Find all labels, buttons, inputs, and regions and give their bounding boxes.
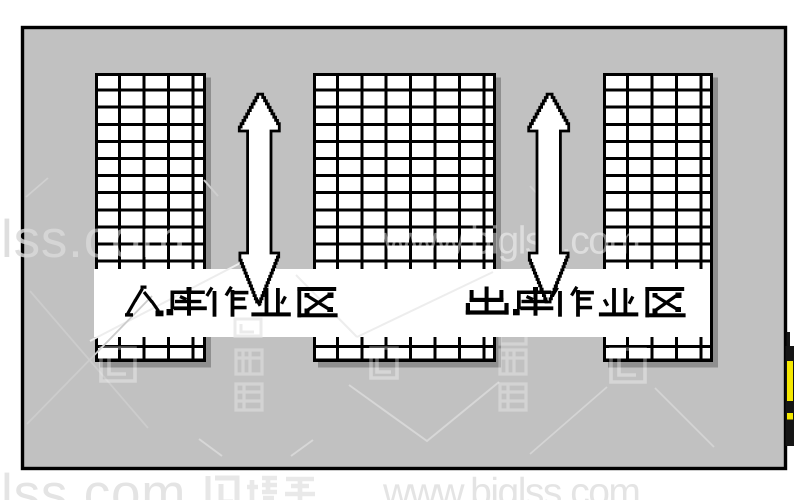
svg-text:www.biglss.com: www.biglss.com xyxy=(382,220,639,263)
svg-text:lss.com: lss.com xyxy=(1,464,186,500)
svg-text:www.biglss.com: www.biglss.com xyxy=(382,471,639,500)
